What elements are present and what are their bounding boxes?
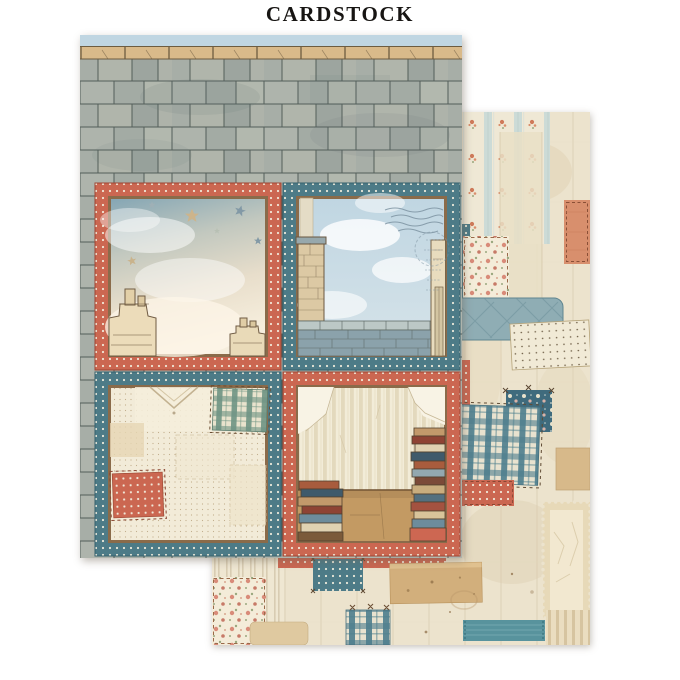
stone-chimney [296,237,326,321]
panel-bottom-left [95,372,281,556]
patch-blue-plaid-stitched [346,604,390,645]
book-stack-left [298,481,343,541]
panel-top-right [283,183,460,370]
patch-green-plaid [210,385,271,434]
product-image: CARDSTOCK [0,0,680,680]
building-edge [431,240,446,356]
stitched-outline-patch [176,435,234,479]
panel-top-left [95,183,281,370]
postage-stamp-frame [543,502,590,618]
faded-patch [110,423,144,457]
patch-ribbed-stripe [546,610,590,645]
stitched-outline-patch-2 [230,465,266,525]
teal-ribbon [463,620,545,641]
patch-blue-plaid-large [455,402,543,488]
patch-coral-polka [110,470,167,521]
patch-coral-dot-small [458,480,514,506]
patch-teal-dot-square [311,557,365,593]
book-stack-right [410,428,446,541]
parapet [298,321,445,356]
front-sheet [80,35,462,558]
panel-bottom-right [283,372,460,556]
patch-kraft-paper [390,562,483,604]
product-title: CARDSTOCK [0,2,680,27]
patch-beige-tag [250,622,308,645]
patch-tan-paper [556,448,590,490]
front-sheet-art [80,35,462,558]
patch-cream-pin-dot [510,320,590,370]
patch-salmon-stitched [564,200,590,264]
shirt-collar [135,387,217,431]
